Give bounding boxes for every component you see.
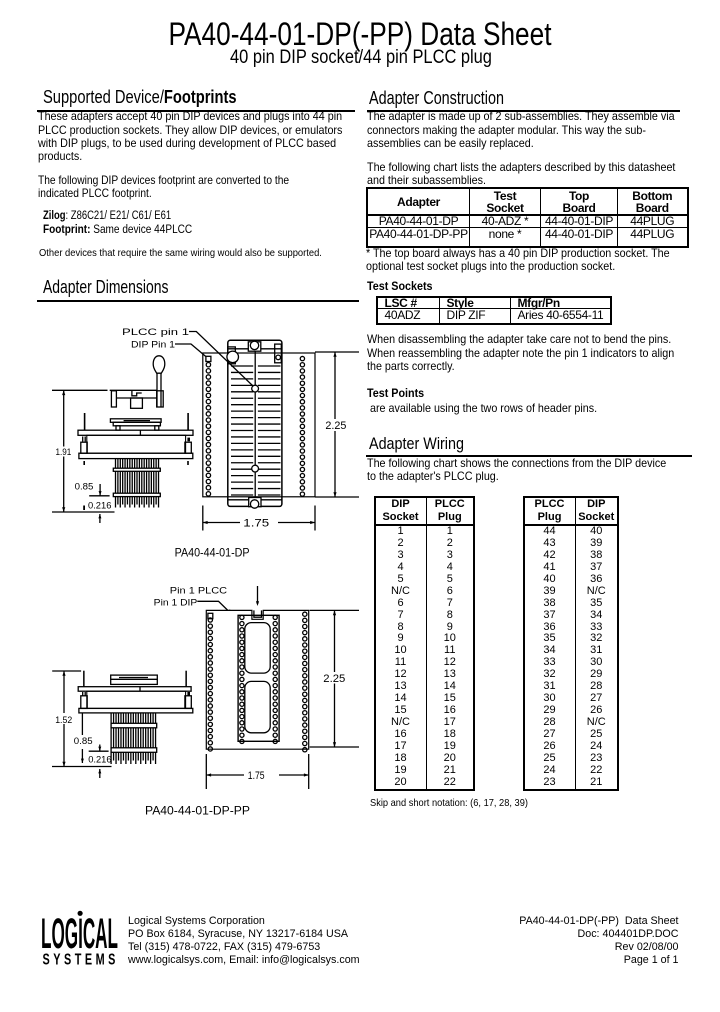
svg-text:1.75: 1.75 [243, 517, 269, 529]
svg-text:DIP Pin 1: DIP Pin 1 [131, 340, 175, 351]
svg-text:PLCC pin 1: PLCC pin 1 [122, 327, 189, 338]
svg-text:0.216: 0.216 [88, 501, 111, 512]
svg-text:2.25: 2.25 [323, 673, 345, 685]
svg-text:2.25: 2.25 [325, 420, 346, 432]
svg-text:PA40-44-01-DP: PA40-44-01-DP [175, 546, 250, 560]
svg-text:Pin 1 PLCC: Pin 1 PLCC [170, 586, 227, 597]
svg-text:1.91: 1.91 [56, 447, 72, 458]
svg-text:PA40-44-01-DP-PP: PA40-44-01-DP-PP [145, 804, 250, 818]
svg-text:0.85: 0.85 [74, 736, 93, 747]
svg-text:SYSTEMS: SYSTEMS [43, 952, 119, 969]
svg-text:0.216: 0.216 [88, 754, 111, 765]
svg-text:1.52: 1.52 [55, 715, 72, 726]
svg-text:1.75: 1.75 [248, 770, 265, 782]
svg-text:Pin 1 DIP: Pin 1 DIP [154, 598, 198, 609]
svg-text:0.85: 0.85 [75, 482, 94, 493]
